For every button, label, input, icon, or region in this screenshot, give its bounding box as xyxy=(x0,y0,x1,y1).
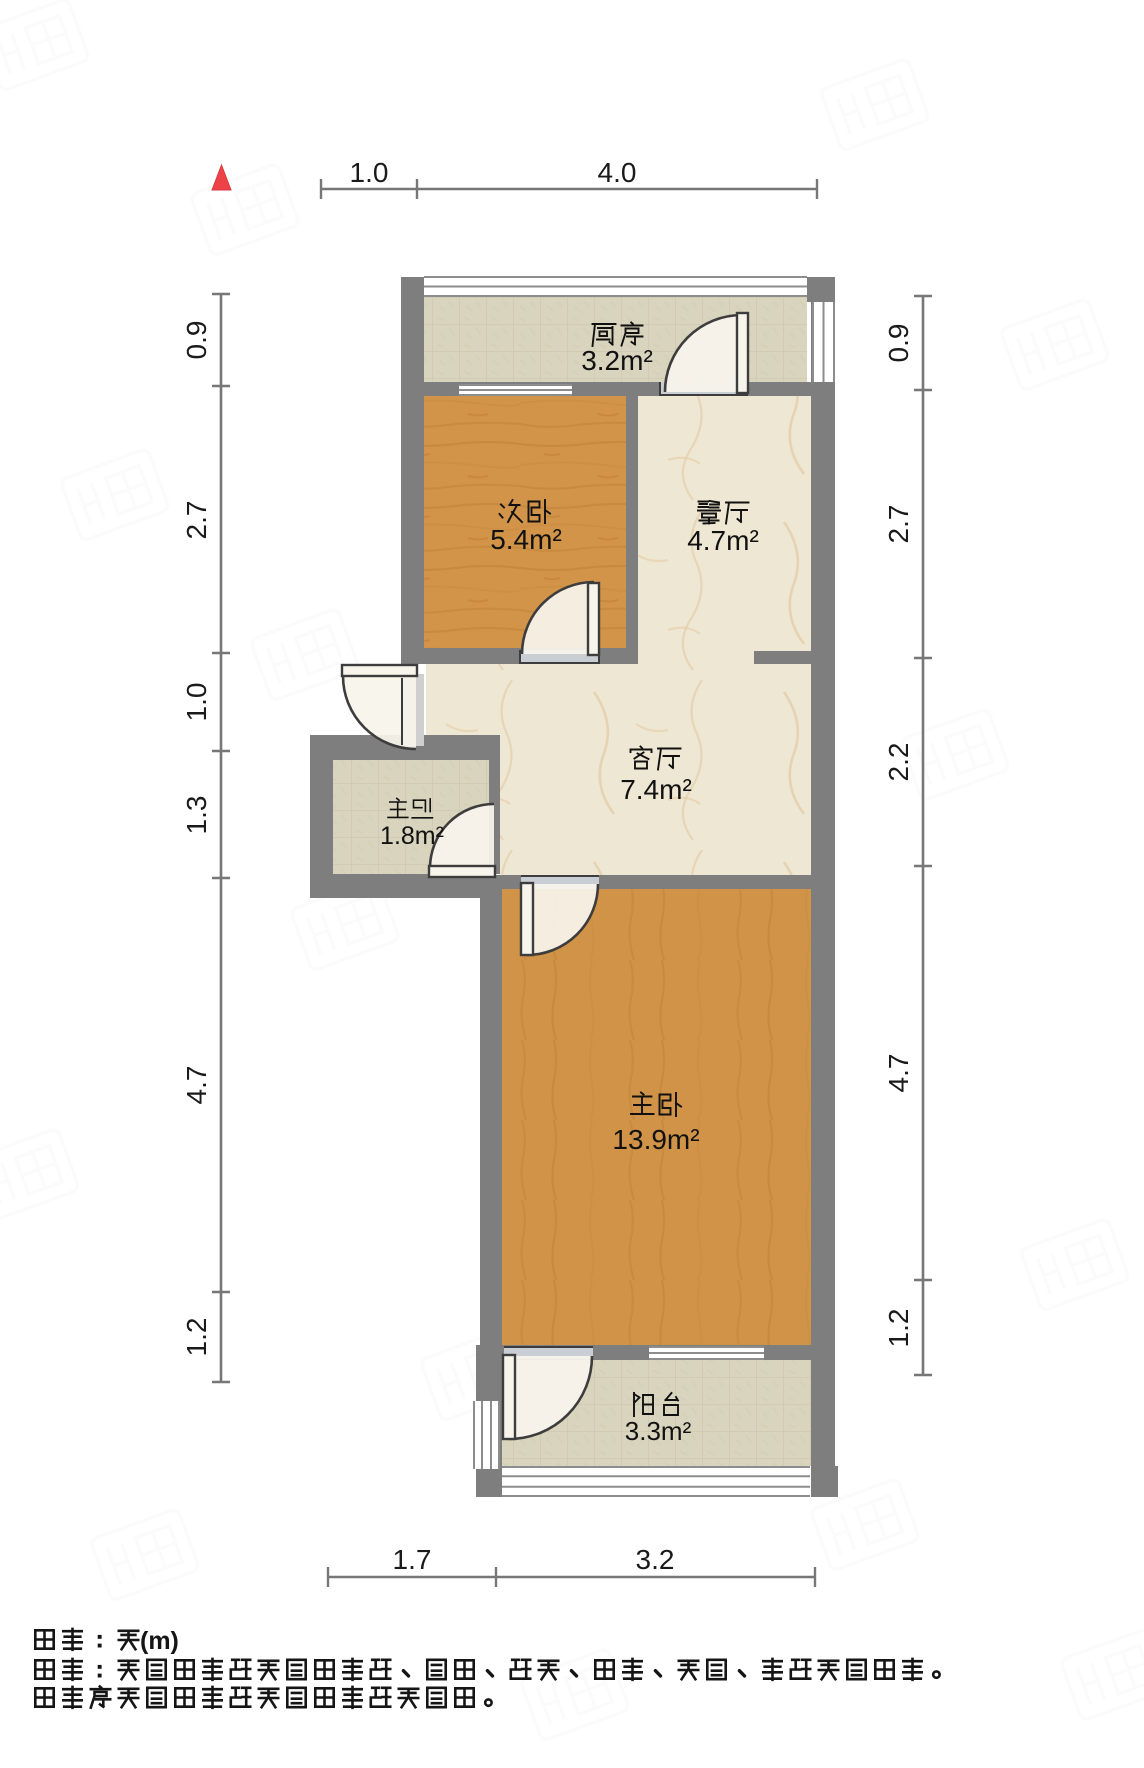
svg-text:3.2: 3.2 xyxy=(636,1544,675,1575)
svg-text:4.0: 4.0 xyxy=(598,157,637,188)
svg-text:1.8m²: 1.8m² xyxy=(380,822,444,850)
svg-text:3.2m²: 3.2m² xyxy=(581,345,653,376)
svg-text:1.2: 1.2 xyxy=(883,1309,914,1348)
svg-text:2.2: 2.2 xyxy=(883,743,914,782)
svg-text:1.0: 1.0 xyxy=(350,157,389,188)
svg-text:1.2: 1.2 xyxy=(181,1318,212,1357)
svg-text:4.7m²: 4.7m² xyxy=(687,525,759,556)
svg-text:1.0: 1.0 xyxy=(181,683,212,722)
svg-text:2.7: 2.7 xyxy=(883,505,914,544)
svg-text:3.3m²: 3.3m² xyxy=(625,1416,692,1446)
svg-text:13.9m²: 13.9m² xyxy=(612,1124,699,1155)
svg-text:5.4m²: 5.4m² xyxy=(490,524,562,555)
svg-text:1.7: 1.7 xyxy=(393,1544,432,1575)
svg-text:1.3: 1.3 xyxy=(181,796,212,835)
svg-text:4.7: 4.7 xyxy=(883,1054,914,1093)
svg-text:4.7: 4.7 xyxy=(181,1066,212,1105)
svg-text:0.9: 0.9 xyxy=(883,324,914,363)
svg-text:7.4m²: 7.4m² xyxy=(620,774,692,805)
svg-text:2.7: 2.7 xyxy=(181,501,212,540)
svg-text:0.9: 0.9 xyxy=(181,321,212,360)
svg-text:(m): (m) xyxy=(140,1627,179,1655)
